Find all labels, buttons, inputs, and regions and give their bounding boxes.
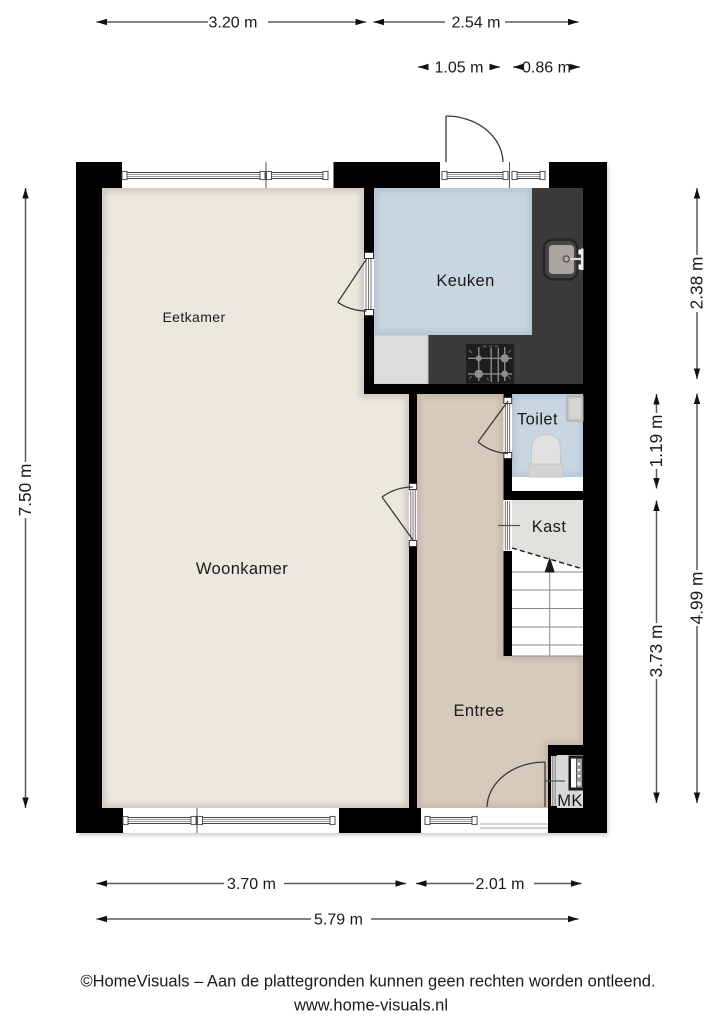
- svg-text:www.home-visuals.nl: www.home-visuals.nl: [293, 997, 448, 1015]
- svg-text:1.05 m: 1.05 m: [435, 60, 484, 77]
- svg-text:Kast: Kast: [532, 518, 567, 536]
- svg-text:0.86 m: 0.86 m: [522, 60, 571, 77]
- svg-text:Toilet: Toilet: [517, 411, 558, 429]
- svg-text:3.73 m: 3.73 m: [646, 625, 666, 678]
- svg-text:Woonkamer: Woonkamer: [196, 560, 288, 578]
- svg-text:2.01 m: 2.01 m: [476, 876, 525, 893]
- svg-text:3.70 m: 3.70 m: [227, 876, 276, 893]
- svg-text:7.50 m: 7.50 m: [15, 464, 35, 517]
- svg-text:©HomeVisuals – Aan de plattegr: ©HomeVisuals – Aan de plattegronden kunn…: [80, 973, 655, 991]
- svg-text:Entree: Entree: [453, 702, 504, 720]
- svg-text:1.19 m: 1.19 m: [646, 415, 666, 468]
- svg-text:2.54 m: 2.54 m: [452, 15, 501, 32]
- svg-text:2.38 m: 2.38 m: [687, 257, 707, 310]
- svg-text:3.20 m: 3.20 m: [209, 15, 258, 32]
- svg-text:Keuken: Keuken: [436, 272, 494, 290]
- svg-text:4.99 m: 4.99 m: [687, 572, 707, 625]
- svg-text:5.79 m: 5.79 m: [314, 912, 363, 929]
- svg-text:MK: MK: [557, 792, 583, 810]
- svg-text:Eetkamer: Eetkamer: [162, 309, 225, 325]
